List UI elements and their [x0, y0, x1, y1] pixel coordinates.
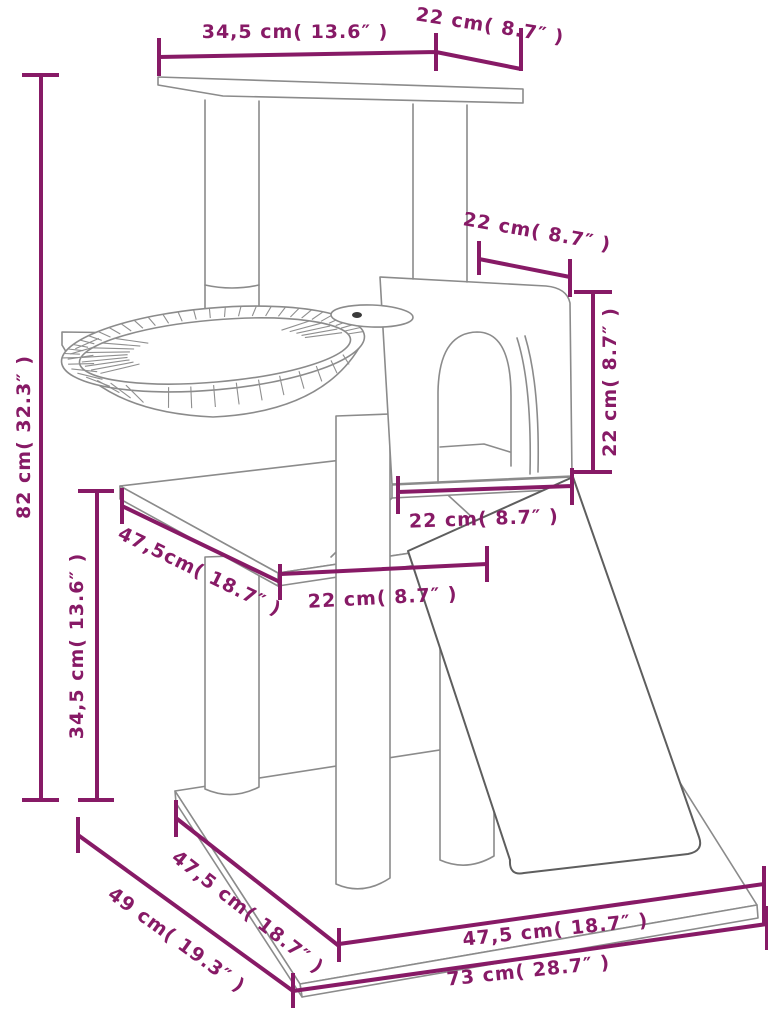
cat-tree-dimension-diagram: 34,5 cm( 13.6″ ) 22 cm( 8.7″ ) 82 cm( 32…: [0, 0, 768, 1013]
dim-lower-section-height-label: 34,5 cm( 13.6″ ): [66, 553, 88, 740]
dim-lower-section-height: 34,5 cm( 13.6″ ): [66, 491, 114, 800]
hammock-bowl: [58, 295, 413, 417]
dim-condo-roof-depth-label: 22 cm( 8.7″ ): [461, 208, 612, 256]
cat-tree-drawing: [58, 77, 758, 997]
dim-condo-height: 22 cm( 8.7″ ): [574, 292, 621, 472]
scratching-post-center: [336, 414, 390, 889]
top-platform: [158, 77, 523, 103]
dim-total-height-label: 82 cm( 32.3″ ): [13, 355, 35, 519]
dim-total-height: 82 cm( 32.3″ ): [13, 75, 59, 800]
dim-top-platform-depth-label: 34,5 cm( 13.6″ ): [202, 21, 389, 43]
flange-bolt-hole: [352, 312, 362, 318]
condo-house: [380, 277, 572, 484]
product-dimension-page: 34,5 cm( 13.6″ ) 22 cm( 8.7″ ) 82 cm( 32…: [0, 0, 768, 1013]
dim-top-platform-depth: 34,5 cm( 13.6″ ): [159, 21, 436, 76]
dim-condo-height-label: 22 cm( 8.7″ ): [599, 307, 621, 457]
